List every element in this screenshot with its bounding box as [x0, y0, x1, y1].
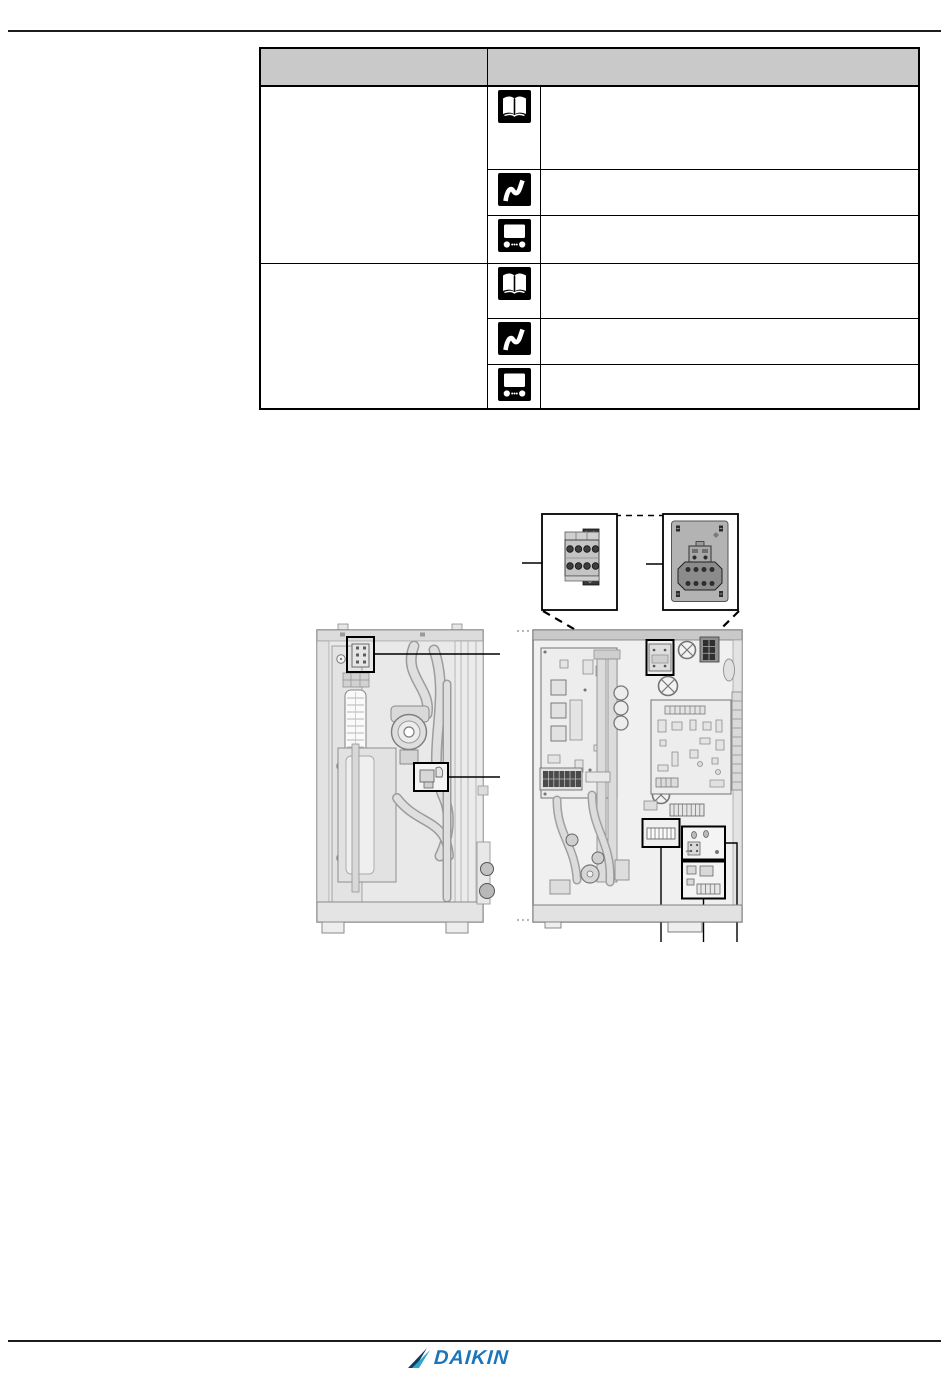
user-interface-icon	[498, 368, 531, 401]
power-terminal-block	[700, 637, 719, 662]
table-cell-text	[541, 264, 918, 318]
table-row	[488, 87, 918, 170]
main-pcb	[651, 700, 731, 794]
plate-heat-exchanger	[338, 744, 396, 892]
table-section-1-label	[261, 87, 488, 263]
terminal-plate-detail-box	[646, 514, 738, 610]
mounting-plate-illustration	[672, 521, 729, 602]
daikin-triangle-mark	[407, 1348, 431, 1369]
unit-switchbox-view	[517, 630, 742, 942]
table-cell-text	[541, 170, 918, 215]
table-row	[488, 319, 918, 365]
reference-guide-icon	[498, 322, 531, 355]
table-section-1	[261, 87, 918, 264]
mid-terminal	[670, 804, 704, 816]
terminal-block-detail-box	[522, 514, 617, 610]
switchbox-top-component-highlight	[647, 640, 674, 675]
daikin-logo: DAIKIN	[407, 1346, 509, 1370]
table-row	[488, 216, 918, 263]
operation-manual-icon	[498, 90, 531, 123]
table-header-col1	[261, 49, 488, 85]
terminal-block-illustration	[565, 529, 599, 585]
table-cell-text	[541, 87, 918, 169]
documentation-table	[259, 47, 920, 410]
table-cell-text	[541, 319, 918, 364]
table-section-2-label	[261, 264, 488, 410]
reference-guide-icon	[498, 173, 531, 206]
unit-wiring-diagram	[280, 495, 770, 955]
unit-front-view	[317, 624, 500, 933]
table-row	[488, 264, 918, 319]
user-interface-icon	[498, 219, 531, 252]
table-section-2	[261, 264, 918, 410]
table-cell-text	[541, 216, 918, 263]
table-cell-text	[541, 365, 918, 410]
table-row	[488, 365, 918, 410]
table-row	[488, 170, 918, 216]
footer-rule	[8, 1340, 941, 1342]
din-terminal-strip	[732, 692, 742, 790]
header-rule	[8, 30, 941, 32]
manual-page: DAIKIN	[0, 0, 950, 1387]
brand-wordmark: DAIKIN	[433, 1347, 509, 1370]
table-header-row	[261, 49, 918, 87]
table-header-col2	[488, 49, 918, 85]
operation-manual-icon	[498, 267, 531, 300]
knockout-holes	[614, 686, 628, 730]
